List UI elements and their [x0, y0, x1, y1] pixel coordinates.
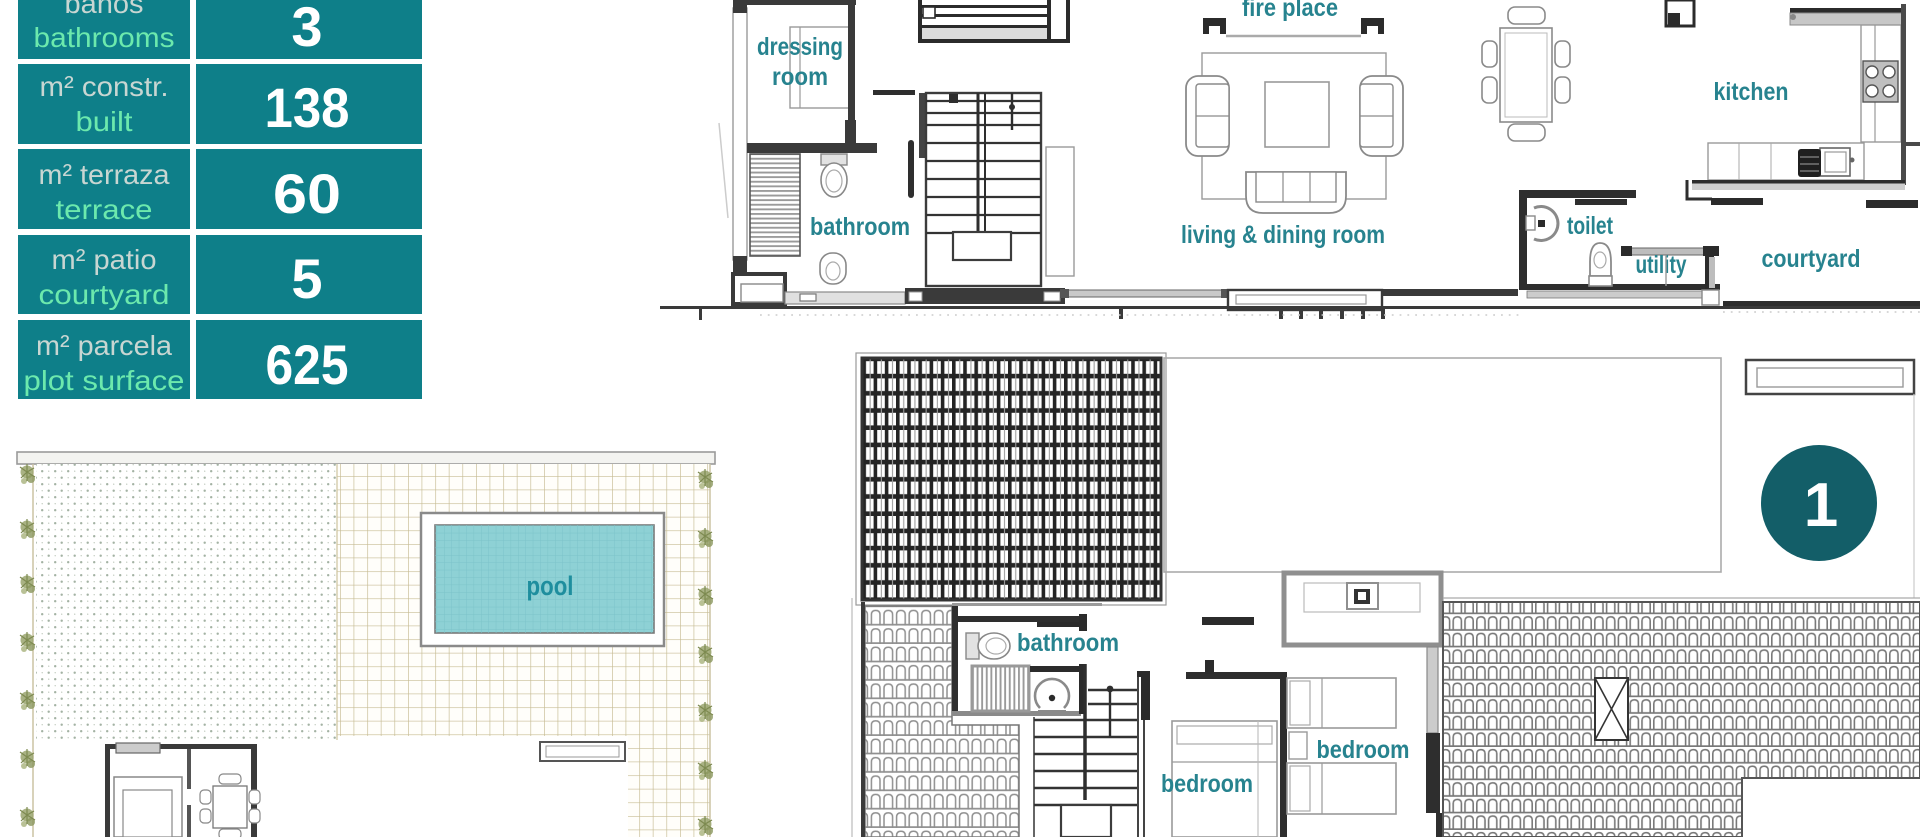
svg-text:dressing: dressing [757, 33, 843, 61]
svg-text:625: 625 [266, 333, 349, 396]
svg-text:bedroom: bedroom [1317, 736, 1410, 764]
svg-text:1: 1 [1804, 471, 1838, 540]
svg-text:m² terraza: m² terraza [39, 159, 170, 190]
svg-text:plot surface: plot surface [24, 365, 185, 396]
svg-text:baños: baños [65, 0, 144, 19]
svg-text:3: 3 [291, 0, 322, 58]
svg-text:5: 5 [291, 247, 322, 310]
svg-text:138: 138 [265, 76, 350, 139]
svg-text:courtyard: courtyard [1762, 245, 1861, 273]
svg-text:room: room [772, 63, 828, 91]
svg-text:m² patio: m² patio [52, 244, 157, 275]
svg-text:built: built [76, 106, 133, 137]
svg-text:courtyard: courtyard [39, 279, 170, 310]
svg-text:utility: utility [1636, 251, 1687, 279]
svg-text:bedroom: bedroom [1161, 770, 1253, 798]
svg-text:terrace: terrace [56, 194, 153, 225]
svg-text:m² constr.: m² constr. [40, 71, 169, 102]
svg-text:pool: pool [527, 571, 574, 601]
svg-text:living & dining room: living & dining room [1181, 221, 1385, 249]
svg-text:kitchen: kitchen [1714, 78, 1789, 106]
svg-text:60: 60 [273, 162, 341, 225]
svg-text:fire place: fire place [1242, 0, 1338, 22]
svg-text:m² parcela: m² parcela [36, 330, 172, 361]
svg-text:toilet: toilet [1567, 212, 1614, 240]
svg-text:bathroom: bathroom [810, 213, 910, 241]
svg-text:bathroom: bathroom [1017, 629, 1119, 657]
svg-text:bathrooms: bathrooms [34, 22, 175, 53]
